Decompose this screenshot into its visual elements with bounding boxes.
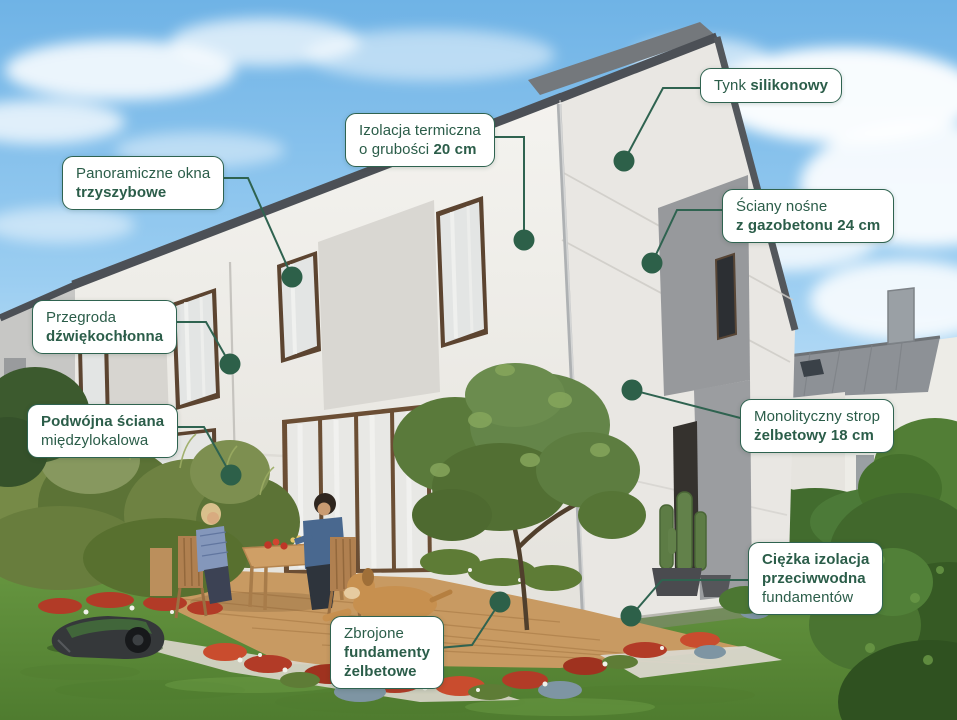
callout-panoramiczne-okna: Panoramiczne oknatrzyszybowe xyxy=(62,156,224,210)
callout-text: Przegroda xyxy=(46,309,116,326)
callout-text-bold: z gazobetonu 24 cm xyxy=(736,217,880,234)
callout-text-line: Ściany nośne xyxy=(736,197,880,216)
callout-text-line: Monolityczny strop xyxy=(754,407,880,426)
callout-podwojna-sciana: Podwójna ścianamiędzylokalowa xyxy=(27,404,178,458)
callout-text: Tynk xyxy=(714,77,750,94)
callout-labels: Tynk silikonowyIzolacja termicznao grubo… xyxy=(0,0,957,720)
callout-text-line: Izolacja termiczna xyxy=(359,121,481,140)
infographic-canvas: Tynk silikonowyIzolacja termicznao grubo… xyxy=(0,0,957,720)
callout-text-line: fundamenty xyxy=(344,643,430,662)
callout-tynk-silikonowy: Tynk silikonowy xyxy=(700,68,842,103)
callout-text-bold: 20 cm xyxy=(433,141,476,158)
callout-text: o grubości xyxy=(359,141,433,158)
callout-ciezka-izolacja: Ciężka izolacjaprzeciwwodnafundamentów xyxy=(748,542,883,615)
callout-sciany-nosne: Ściany nośnez gazobetonu 24 cm xyxy=(722,189,894,243)
callout-text-line: z gazobetonu 24 cm xyxy=(736,216,880,235)
callout-text-line: Ciężka izolacja xyxy=(762,550,869,569)
callout-text-line: żelbetowy 18 cm xyxy=(754,426,880,445)
callout-text-bold: żelbetowy 18 cm xyxy=(754,427,874,444)
callout-text-line: Tynk silikonowy xyxy=(714,76,828,95)
callout-text: Ściany nośne xyxy=(736,198,827,215)
callout-izolacja-termiczna: Izolacja termicznao grubości 20 cm xyxy=(345,113,495,167)
callout-text: Izolacja termiczna xyxy=(359,122,481,139)
callout-text-bold: fundamenty xyxy=(344,644,430,661)
callout-text-line: dźwiękochłonna xyxy=(46,327,163,346)
callout-zbrojone-fundamenty: Zbrojonefundamentyżelbetowe xyxy=(330,616,444,689)
callout-text-line: trzyszybowe xyxy=(76,183,210,202)
callout-text-bold: dźwiękochłonna xyxy=(46,328,163,345)
callout-text-bold: żelbetowe xyxy=(344,663,417,680)
callout-text-bold: trzyszybowe xyxy=(76,184,166,201)
callout-text-line: przeciwwodna xyxy=(762,569,869,588)
callout-przegroda-dzwiekochlonna: Przegrodadźwiękochłonna xyxy=(32,300,177,354)
callout-text: fundamentów xyxy=(762,589,853,606)
callout-text-line: Przegroda xyxy=(46,308,163,327)
callout-text: Monolityczny strop xyxy=(754,408,880,425)
callout-text-line: fundamentów xyxy=(762,588,869,607)
callout-text-bold: Podwójna ściana xyxy=(41,413,164,430)
callout-text-line: żelbetowe xyxy=(344,662,430,681)
callout-text-bold: przeciwwodna xyxy=(762,570,866,587)
callout-text: międzylokalowa xyxy=(41,432,148,449)
callout-text-bold: silikonowy xyxy=(750,77,828,94)
callout-text-line: o grubości 20 cm xyxy=(359,140,481,159)
callout-monolityczny-strop: Monolityczny stropżelbetowy 18 cm xyxy=(740,399,894,453)
callout-text: Panoramiczne okna xyxy=(76,165,210,182)
callout-text-line: Panoramiczne okna xyxy=(76,164,210,183)
callout-text: Zbrojone xyxy=(344,625,404,642)
callout-text-line: międzylokalowa xyxy=(41,431,164,450)
callout-text-line: Podwójna ściana xyxy=(41,412,164,431)
callout-text-line: Zbrojone xyxy=(344,624,430,643)
callout-text-bold: Ciężka izolacja xyxy=(762,551,869,568)
